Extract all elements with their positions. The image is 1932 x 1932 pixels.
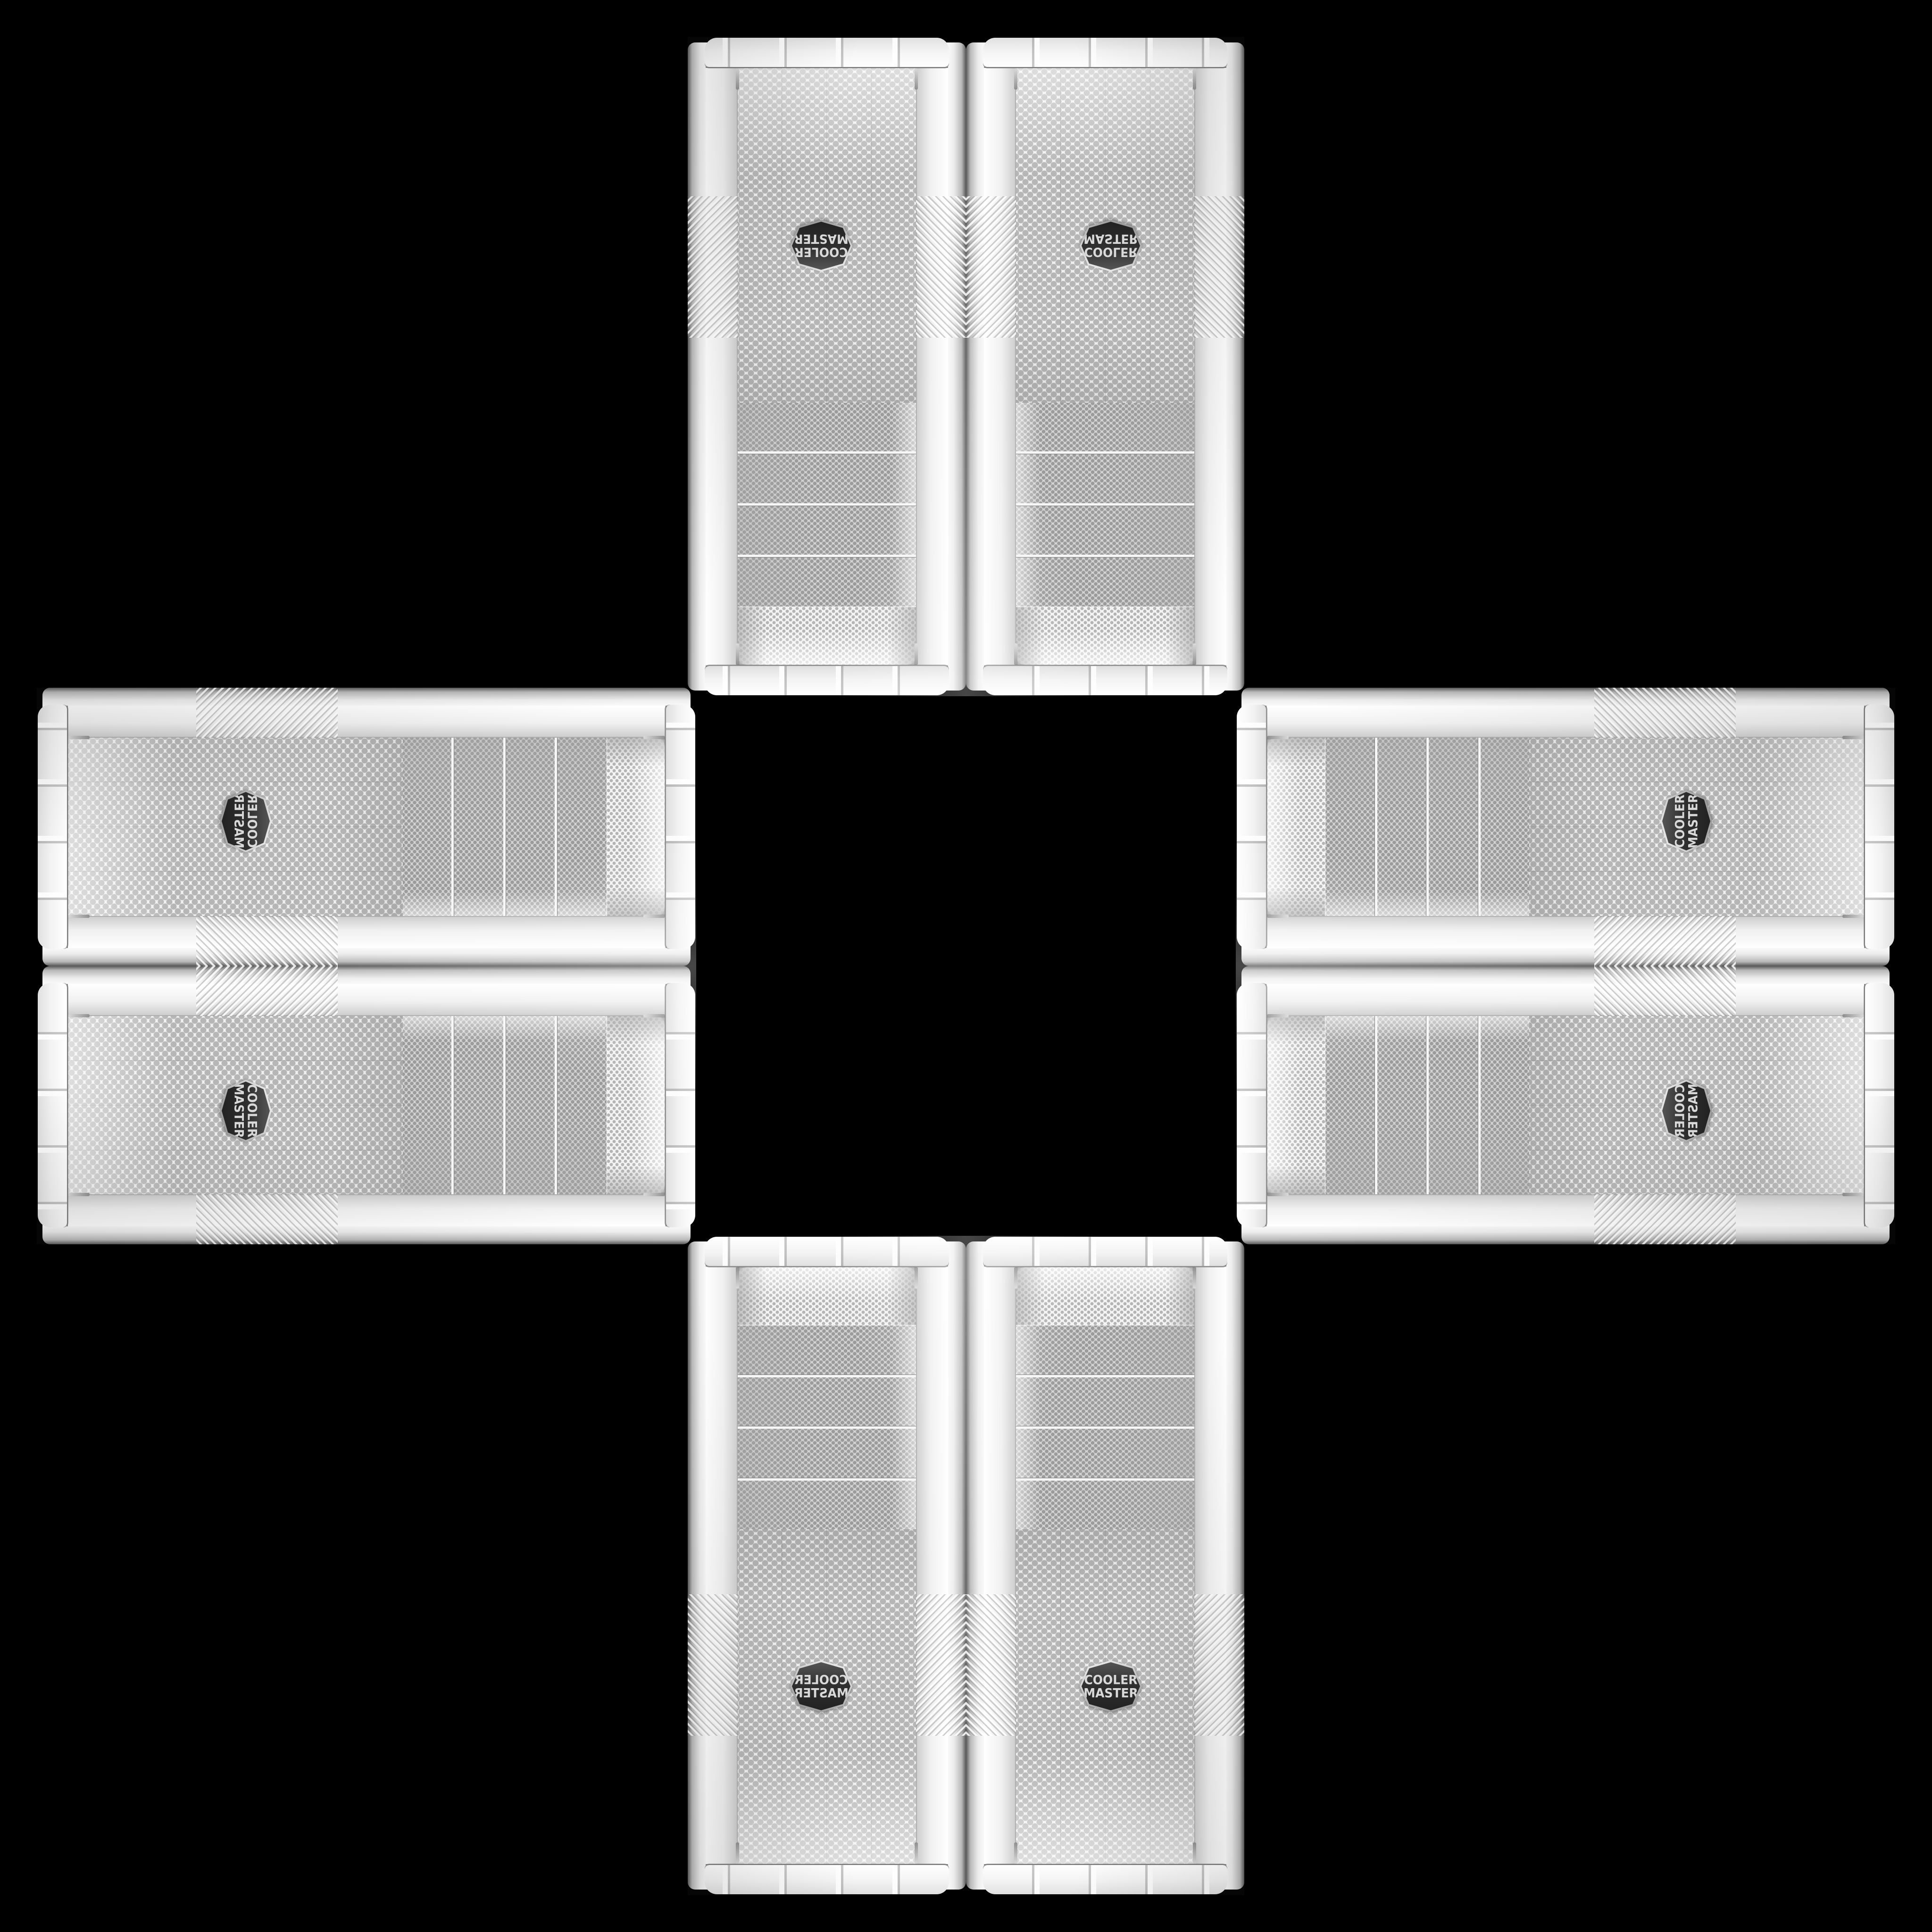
drive-bay-strip: [1016, 506, 1194, 555]
drive-bay-strip: [558, 1016, 607, 1194]
bottom-cap: [1865, 705, 1894, 949]
badge-text-line1: COOLER: [1084, 1673, 1137, 1686]
top-dome-mesh: [738, 1267, 916, 1325]
drive-bay-strip: [738, 1481, 916, 1530]
badge-text-line1: COOLER: [794, 246, 848, 259]
grip-ribs-left: [966, 196, 1016, 338]
badge-core: COOLER MASTER: [1082, 222, 1140, 270]
drive-bay-strip: [1377, 738, 1426, 916]
cooler-master-logo-badge: COOLER MASTER: [790, 220, 852, 272]
top-dome-mesh: [738, 607, 916, 665]
drive-bay-strip: [1429, 1016, 1478, 1194]
bottom-cap: [1865, 983, 1894, 1227]
badge-text-line1: COOLER: [246, 1084, 259, 1137]
badge-text-line2: MASTER: [794, 233, 849, 246]
badge-rim: COOLER MASTER: [220, 1080, 272, 1142]
pc-case-right-top: COOLER MASTER: [1236, 688, 1895, 966]
cooler-master-logo-badge: COOLER MASTER: [1660, 790, 1712, 852]
grip-ribs-right: [1194, 1594, 1244, 1736]
badge-text-line2: MASTER: [1686, 1083, 1699, 1138]
side-panel-sliver-left: [966, 1241, 986, 1890]
badge-rim: COOLER MASTER: [1080, 220, 1142, 272]
top-cap: [1237, 705, 1266, 949]
badge-text-line2: MASTER: [1083, 1686, 1138, 1699]
drive-bays: [1016, 403, 1194, 607]
top-dome-mesh: [1016, 607, 1194, 665]
chrome-corner-top-right: [1267, 1193, 1289, 1196]
pc-case-bottom-right: COOLER MASTER: [966, 1236, 1244, 1895]
chrome-corner-bottom-right: [68, 736, 90, 739]
grip-ribs-right: [196, 688, 338, 738]
chrome-corner-top-left: [915, 1267, 918, 1289]
case-slot-bottom-right: COOLER MASTER: [966, 1236, 1244, 1895]
drive-bay-strip: [738, 403, 916, 452]
case-slot-right-bottom: COOLER MASTER: [1236, 966, 1895, 1244]
top-cap: [1237, 983, 1266, 1227]
drive-bays: [403, 1016, 607, 1194]
side-panel-sliver-left: [1241, 966, 1890, 986]
drive-bay-strip: [1016, 1481, 1194, 1530]
pc-case-right-bottom: COOLER MASTER: [1236, 966, 1895, 1244]
case-slot-left-top: COOLER MASTER: [37, 688, 696, 966]
grip-ribs-right: [688, 196, 738, 338]
side-panel-sliver-left: [42, 966, 691, 986]
badge-core: COOLER MASTER: [792, 1662, 850, 1710]
badge-rim: COOLER MASTER: [1660, 1080, 1712, 1142]
side-panel-sliver-right: [42, 1224, 691, 1244]
badge-rim: COOLER MASTER: [1660, 790, 1712, 852]
badge-text-line1: COOLER: [1084, 246, 1137, 259]
side-panel-sliver-right: [688, 42, 708, 691]
badge-text-line2: MASTER: [1686, 794, 1699, 849]
badge-text-line2: MASTER: [794, 1686, 849, 1699]
drive-bay-strip: [1325, 1016, 1374, 1194]
front-mesh-panel: [1016, 1267, 1194, 1864]
chrome-corner-top-right: [1193, 1267, 1196, 1289]
front-mesh-panel: [738, 1267, 916, 1864]
chrome-corner-top-left: [1014, 1267, 1017, 1289]
drive-bay-strip: [1377, 1016, 1426, 1194]
top-cap: [983, 1237, 1227, 1266]
drive-bay-strip: [738, 558, 916, 607]
bezel-rail-left: [1265, 916, 1866, 948]
bezel-rail-right: [1265, 706, 1866, 738]
chrome-corner-bottom-left: [1014, 68, 1017, 90]
cooler-master-logo-badge: COOLER MASTER: [1080, 220, 1142, 272]
drive-bays: [403, 738, 607, 916]
grip-ribs-left: [966, 1594, 1016, 1736]
side-panel-sliver-right: [1224, 1241, 1244, 1890]
cooler-master-logo-badge: COOLER MASTER: [790, 1660, 852, 1712]
drive-bay-strip: [1016, 455, 1194, 504]
drive-bay-strip: [738, 1429, 916, 1478]
drive-bay-strip: [1016, 1325, 1194, 1374]
pc-case-left-top: COOLER MASTER: [37, 688, 696, 966]
chrome-corner-bottom-right: [736, 1842, 739, 1864]
top-dome-mesh: [1267, 738, 1325, 916]
grip-ribs-right: [1194, 196, 1244, 338]
drive-bay-strip: [1016, 403, 1194, 452]
front-mesh-panel: [68, 738, 665, 916]
side-panel-sliver-right: [688, 1241, 708, 1890]
badge-core: COOLER MASTER: [1082, 1662, 1140, 1710]
cooler-master-logo-badge: COOLER MASTER: [1080, 1660, 1142, 1712]
pc-case-left-bottom: COOLER MASTER: [37, 966, 696, 1244]
side-panel-sliver-right: [42, 688, 691, 708]
side-panel-sliver-right: [1241, 688, 1890, 708]
chrome-corner-bottom-left: [1842, 1014, 1864, 1017]
bezel-rail-left: [916, 66, 948, 667]
chrome-corner-bottom-right: [736, 68, 739, 90]
drive-bay-strip: [1481, 738, 1530, 916]
grip-ribs-left: [1594, 916, 1736, 966]
bezel-rail-left: [984, 66, 1016, 667]
chrome-corner-top-right: [1193, 643, 1196, 665]
drive-bay-strip: [1016, 1429, 1194, 1478]
drive-bay-strip: [455, 738, 504, 916]
top-cap: [705, 666, 949, 695]
badge-rim: COOLER MASTER: [790, 1660, 852, 1712]
bottom-cap: [983, 38, 1227, 67]
bezel-rail-left: [984, 1265, 1016, 1866]
front-mesh-panel: [68, 1016, 665, 1194]
drive-bays: [738, 403, 916, 607]
badge-core: COOLER MASTER: [222, 1082, 270, 1140]
cooler-master-logo-badge: COOLER MASTER: [1660, 1080, 1712, 1142]
chrome-corner-top-right: [643, 1193, 665, 1196]
drive-bay-strip: [738, 455, 916, 504]
drive-bays: [1016, 1325, 1194, 1529]
front-mesh-panel: [738, 68, 916, 665]
drive-bay-strip: [506, 738, 555, 916]
side-panel-sliver-left: [966, 42, 986, 691]
chrome-corner-top-left: [1267, 915, 1289, 918]
drive-bay-strip: [1016, 1377, 1194, 1426]
chrome-corner-bottom-right: [68, 1193, 90, 1196]
bezel-rail-right: [66, 706, 667, 738]
front-mesh-panel: [1016, 68, 1194, 665]
chrome-corner-top-right: [736, 643, 739, 665]
grip-ribs-left: [916, 196, 966, 338]
bezel-rail-left: [66, 916, 667, 948]
pc-case-top-right: COOLER MASTER: [966, 37, 1244, 696]
chrome-corner-top-left: [643, 915, 665, 918]
grip-ribs-right: [1594, 1194, 1736, 1244]
badge-text-line1: COOLER: [1673, 794, 1686, 848]
drive-bay-strip: [558, 738, 607, 916]
top-dome-mesh: [1016, 1267, 1194, 1325]
chrome-corner-bottom-left: [68, 1014, 90, 1017]
badge-text-line2: MASTER: [233, 1083, 246, 1138]
badge-core: COOLER MASTER: [1662, 1082, 1710, 1140]
chrome-corner-top-left: [1014, 643, 1017, 665]
drive-bay-strip: [1325, 738, 1374, 916]
bottom-cap: [705, 38, 949, 67]
case-slot-left-bottom: COOLER MASTER: [37, 966, 696, 1244]
collage-canvas: COOLER MASTER: [0, 0, 1932, 1932]
top-cap: [666, 705, 695, 949]
bezel-rail-right: [706, 1265, 738, 1866]
pc-case-bottom-left: COOLER MASTER: [688, 1236, 966, 1895]
bottom-cap: [705, 1865, 949, 1894]
badge-rim: COOLER MASTER: [790, 220, 852, 272]
top-dome-mesh: [1267, 1016, 1325, 1194]
front-mesh-panel: [1267, 1016, 1864, 1194]
case-slot-bottom-left: COOLER MASTER: [688, 1236, 966, 1895]
grip-ribs-left: [196, 916, 338, 966]
grip-ribs-left: [916, 1594, 966, 1736]
side-panel-sliver-left: [42, 946, 691, 966]
chrome-corner-top-right: [643, 736, 665, 739]
top-cap: [666, 983, 695, 1227]
badge-core: COOLER MASTER: [792, 222, 850, 270]
bezel-rail-left: [916, 1265, 948, 1866]
bezel-rail-right: [1194, 1265, 1226, 1866]
chrome-corner-bottom-left: [915, 1842, 918, 1864]
bezel-rail-right: [1265, 1194, 1866, 1226]
chrome-corner-top-left: [643, 1014, 665, 1017]
case-slot-top-left: COOLER MASTER: [688, 37, 966, 696]
bottom-cap: [38, 705, 67, 949]
chrome-corner-top-right: [1267, 736, 1289, 739]
badge-text-line2: MASTER: [233, 794, 246, 849]
grip-ribs-right: [1594, 688, 1736, 738]
cooler-master-logo-badge: COOLER MASTER: [220, 1080, 272, 1142]
chrome-corner-bottom-right: [1193, 1842, 1196, 1864]
case-slot-right-top: COOLER MASTER: [1236, 688, 1895, 966]
drive-bay-strip: [403, 1016, 452, 1194]
badge-text-line1: COOLER: [1673, 1084, 1686, 1137]
side-panel-sliver-left: [1241, 946, 1890, 966]
drive-bay-strip: [1016, 558, 1194, 607]
drive-bay-strip: [738, 506, 916, 555]
grip-ribs-left: [1594, 966, 1736, 1016]
bezel-rail-left: [66, 984, 667, 1016]
drive-bays: [1325, 738, 1529, 916]
badge-core: COOLER MASTER: [1662, 792, 1710, 850]
chrome-corner-top-left: [1267, 1014, 1289, 1017]
case-slot-top-right: COOLER MASTER: [966, 37, 1244, 696]
grip-ribs-left: [196, 966, 338, 1016]
drive-bay-strip: [738, 1325, 916, 1374]
drive-bay-strip: [1481, 1016, 1530, 1194]
badge-rim: COOLER MASTER: [220, 790, 272, 852]
bezel-rail-right: [1194, 66, 1226, 667]
bottom-cap: [983, 1865, 1227, 1894]
chrome-corner-bottom-right: [1193, 68, 1196, 90]
cooler-master-logo-badge: COOLER MASTER: [220, 790, 272, 852]
top-dome-mesh: [607, 1016, 665, 1194]
side-panel-sliver-left: [946, 1241, 966, 1890]
bezel-rail-right: [706, 66, 738, 667]
drive-bays: [738, 1325, 916, 1529]
top-cap: [705, 1237, 949, 1266]
chrome-corner-bottom-left: [68, 915, 90, 918]
top-cap: [983, 666, 1227, 695]
side-panel-sliver-right: [1224, 42, 1244, 691]
bezel-rail-left: [1265, 984, 1866, 1016]
drive-bay-strip: [403, 738, 452, 916]
top-dome-mesh: [607, 738, 665, 916]
chrome-corner-bottom-right: [1842, 736, 1864, 739]
front-mesh-panel: [1267, 738, 1864, 916]
chrome-corner-bottom-left: [1842, 915, 1864, 918]
side-panel-sliver-left: [946, 42, 966, 691]
chrome-corner-bottom-right: [1842, 1193, 1864, 1196]
badge-rim: COOLER MASTER: [1080, 1660, 1142, 1712]
side-panel-sliver-right: [1241, 1224, 1890, 1244]
bottom-cap: [38, 983, 67, 1227]
drive-bay-strip: [455, 1016, 504, 1194]
bezel-rail-right: [66, 1194, 667, 1226]
badge-text-line1: COOLER: [246, 794, 259, 848]
grip-ribs-right: [688, 1594, 738, 1736]
badge-core: COOLER MASTER: [222, 792, 270, 850]
badge-text-line2: MASTER: [1083, 233, 1138, 246]
chrome-corner-top-right: [736, 1267, 739, 1289]
grip-ribs-right: [196, 1194, 338, 1244]
chrome-corner-bottom-left: [1014, 1842, 1017, 1864]
chrome-corner-top-left: [915, 643, 918, 665]
chrome-corner-bottom-left: [915, 68, 918, 90]
pc-case-top-left: COOLER MASTER: [688, 37, 966, 696]
drive-bays: [1325, 1016, 1529, 1194]
drive-bay-strip: [738, 1377, 916, 1426]
badge-text-line1: COOLER: [794, 1673, 848, 1686]
drive-bay-strip: [1429, 738, 1478, 916]
drive-bay-strip: [506, 1016, 555, 1194]
